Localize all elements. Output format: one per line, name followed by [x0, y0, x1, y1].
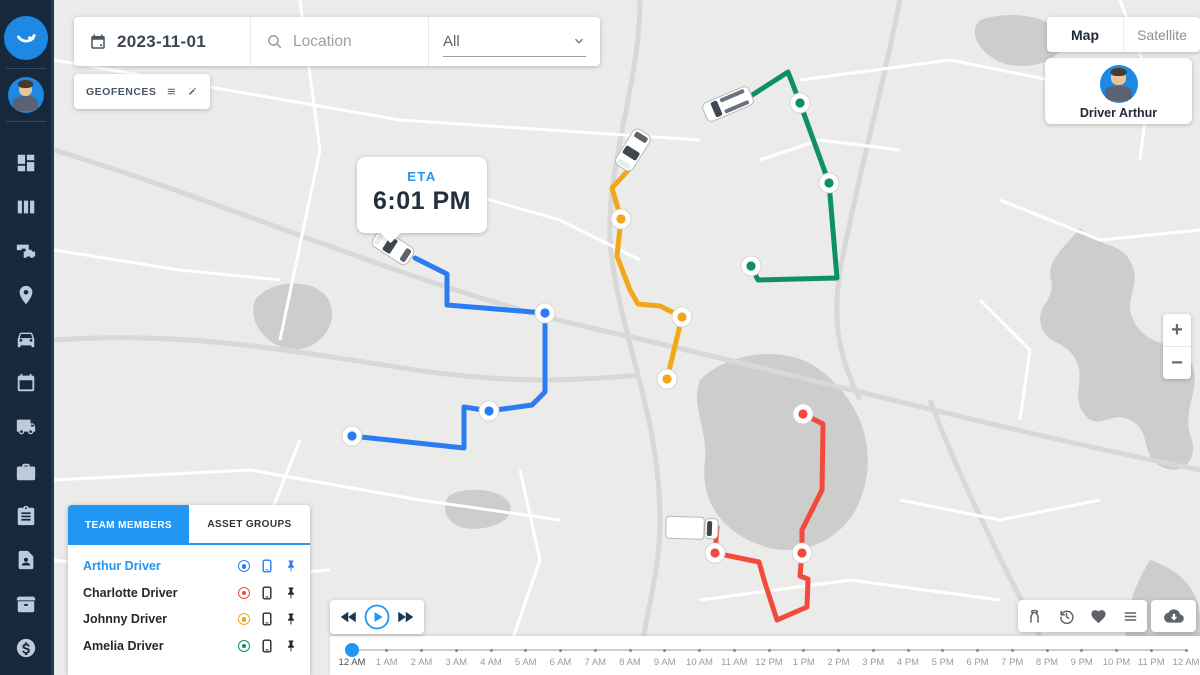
timeline-tick[interactable] — [872, 649, 875, 652]
fast-forward-button[interactable] — [396, 611, 414, 623]
team-member-list: Arthur DriverCharlotte DriverJohnny Driv… — [68, 545, 310, 675]
map-type-toggle: Map Satellite — [1047, 17, 1200, 52]
rewind-button[interactable] — [340, 611, 358, 623]
phone-icon[interactable] — [260, 586, 274, 600]
timeline-tick[interactable] — [976, 649, 979, 652]
route-stop-marker[interactable] — [479, 401, 499, 421]
map-type-map[interactable]: Map — [1047, 17, 1123, 52]
route-stop-marker[interactable] — [657, 369, 677, 389]
team-panel-tabs: TEAM MEMBERS ASSET GROUPS — [68, 505, 310, 545]
route-stop-marker[interactable] — [793, 404, 813, 424]
list-icon[interactable] — [1122, 608, 1139, 625]
sidebar-item-reports[interactable] — [13, 194, 39, 220]
sidebar-item-vehicles[interactable] — [13, 326, 39, 352]
team-member-row[interactable]: Arthur Driver — [68, 553, 310, 580]
timeline-tick[interactable] — [594, 649, 597, 652]
member-name: Arthur Driver — [83, 559, 238, 573]
cloud-download-icon — [1164, 606, 1184, 626]
pin-icon[interactable] — [284, 612, 298, 626]
pin-icon[interactable] — [284, 586, 298, 600]
contact-file-icon — [15, 549, 37, 571]
route-stop-marker[interactable] — [741, 256, 761, 276]
draw-icon[interactable] — [187, 83, 198, 100]
route-stop-marker[interactable] — [535, 303, 555, 323]
timeline-tick[interactable] — [837, 649, 840, 652]
timeline-tick[interactable] — [941, 649, 944, 652]
search-icon — [266, 33, 283, 50]
reports-icon — [15, 196, 37, 218]
driver-avatar — [1100, 65, 1138, 103]
route-stop-marker[interactable] — [790, 93, 810, 113]
sidebar-item-devices[interactable] — [13, 238, 39, 264]
timeline-tick[interactable] — [1080, 649, 1083, 652]
route-toolbar — [1018, 600, 1147, 632]
map-type-satellite[interactable]: Satellite — [1123, 17, 1200, 52]
timeline-tick[interactable] — [629, 649, 632, 652]
sidebar-item-tasks[interactable] — [13, 503, 39, 529]
dashboard-icon — [15, 152, 37, 174]
app-logo-icon[interactable] — [4, 16, 48, 60]
date-value: 2023-11-01 — [117, 32, 206, 52]
archive-box-icon — [15, 593, 37, 615]
sidebar-item-contacts[interactable] — [13, 547, 39, 573]
top-filter-bar: 2023-11-01 All — [74, 17, 600, 66]
timeline-tick[interactable] — [524, 649, 527, 652]
calendar-icon — [89, 33, 107, 51]
calendar-icon — [15, 372, 37, 394]
selected-driver-card[interactable]: Driver Arthur — [1045, 58, 1192, 124]
focus-target-icon[interactable] — [238, 613, 250, 625]
route-stop-marker[interactable] — [792, 543, 812, 563]
date-picker[interactable]: 2023-11-01 — [74, 17, 250, 66]
geofences-control: GEOFENCES — [74, 74, 210, 109]
timeline-tick[interactable] — [1115, 649, 1118, 652]
timeline-tick[interactable] — [455, 649, 458, 652]
timeline-tick[interactable] — [1185, 649, 1188, 652]
phone-icon[interactable] — [260, 639, 274, 653]
timeline-label: 12 AM — [1164, 657, 1200, 668]
split-route-icon[interactable] — [1026, 608, 1043, 625]
car-icon — [15, 328, 37, 350]
timeline-tick[interactable] — [907, 649, 910, 652]
focus-target-icon[interactable] — [238, 640, 250, 652]
pin-icon[interactable] — [284, 639, 298, 653]
sidebar-divider — [6, 68, 46, 69]
phone-icon[interactable] — [260, 612, 274, 626]
eta-label: ETA — [357, 169, 487, 184]
sidebar-item-billing[interactable] — [13, 635, 39, 661]
driver-name: Driver Arthur — [1080, 106, 1157, 120]
truck-icon — [15, 416, 37, 438]
eta-time: 6:01 PM — [357, 187, 487, 216]
list-icon[interactable] — [166, 83, 177, 100]
sidebar-item-jobs[interactable] — [13, 459, 39, 485]
playback-controls — [330, 600, 424, 634]
timeline-handle[interactable] — [345, 643, 359, 657]
map-zoom-controls: + − — [1163, 314, 1191, 379]
tab-asset-groups[interactable]: ASSET GROUPS — [189, 505, 310, 545]
timeline-bar: 12 AM1 AM2 AM3 AM4 AM5 AM6 AM7 AM8 AM9 A… — [330, 636, 1200, 675]
member-name: Charlotte Driver — [83, 586, 238, 600]
route-stop-marker[interactable] — [611, 209, 631, 229]
route-stop-marker[interactable] — [819, 173, 839, 193]
timeline-tick[interactable] — [559, 649, 562, 652]
location-input[interactable] — [291, 32, 415, 52]
timeline-tick[interactable] — [698, 649, 701, 652]
team-member-row[interactable]: Johnny Driver — [68, 606, 310, 633]
team-member-row[interactable]: Amelia Driver — [68, 633, 310, 660]
sidebar-nav — [13, 150, 39, 661]
sidebar-item-dispatch[interactable] — [13, 414, 39, 440]
heart-icon[interactable] — [1090, 608, 1107, 625]
vehicle-marker-truck[interactable] — [666, 516, 719, 540]
geofences-label: GEOFENCES — [86, 86, 156, 98]
sidebar-item-locations[interactable] — [13, 282, 39, 308]
member-name: Amelia Driver — [83, 639, 238, 653]
phone-icon[interactable] — [260, 559, 274, 573]
route-stop-marker[interactable] — [672, 307, 692, 327]
timeline-tick[interactable] — [1150, 649, 1153, 652]
timeline-tick[interactable] — [663, 649, 666, 652]
focus-target-icon[interactable] — [238, 560, 250, 572]
sidebar-avatar[interactable] — [8, 77, 44, 113]
filter-select[interactable]: All — [428, 17, 600, 66]
member-name: Johnny Driver — [83, 612, 238, 626]
team-panel: TEAM MEMBERS ASSET GROUPS Arthur DriverC… — [68, 505, 310, 675]
location-search — [250, 17, 428, 66]
focus-target-icon[interactable] — [238, 587, 250, 599]
team-member-row[interactable]: Charlotte Driver — [68, 580, 310, 607]
tab-team-members[interactable]: TEAM MEMBERS — [68, 505, 189, 545]
app-window: 2023-11-01 All GEOFENCES — [0, 0, 1200, 675]
history-icon[interactable] — [1058, 608, 1075, 625]
dollar-icon — [15, 637, 37, 659]
filter-value: All — [443, 33, 460, 50]
clipboard-icon — [15, 505, 37, 527]
route-stop-marker[interactable] — [705, 543, 725, 563]
sidebar-item-dashboard[interactable] — [13, 150, 39, 176]
chevron-down-icon — [572, 34, 586, 48]
play-button[interactable] — [364, 604, 390, 630]
eta-popup: ETA 6:01 PM — [357, 157, 487, 233]
sidebar — [0, 0, 54, 675]
sidebar-item-schedule[interactable] — [13, 370, 39, 396]
timeline-tick[interactable] — [490, 649, 493, 652]
zoom-in-button[interactable]: + — [1163, 314, 1191, 347]
zoom-out-button[interactable]: − — [1163, 347, 1191, 379]
sidebar-item-inventory[interactable] — [13, 591, 39, 617]
timeline-tick[interactable] — [1011, 649, 1014, 652]
timeline-tick[interactable] — [733, 649, 736, 652]
briefcase-icon — [15, 461, 37, 483]
timeline-tick[interactable] — [1046, 649, 1049, 652]
timeline-tick[interactable] — [420, 649, 423, 652]
timeline-tick[interactable] — [385, 649, 388, 652]
location-pin-icon — [15, 284, 37, 306]
timeline-tick[interactable] — [768, 649, 771, 652]
timeline-tick[interactable] — [802, 649, 805, 652]
download-button[interactable] — [1151, 600, 1196, 632]
pin-icon[interactable] — [284, 559, 298, 573]
route-stop-marker[interactable] — [342, 426, 362, 446]
devices-icon — [15, 240, 37, 262]
sidebar-divider — [6, 121, 46, 122]
